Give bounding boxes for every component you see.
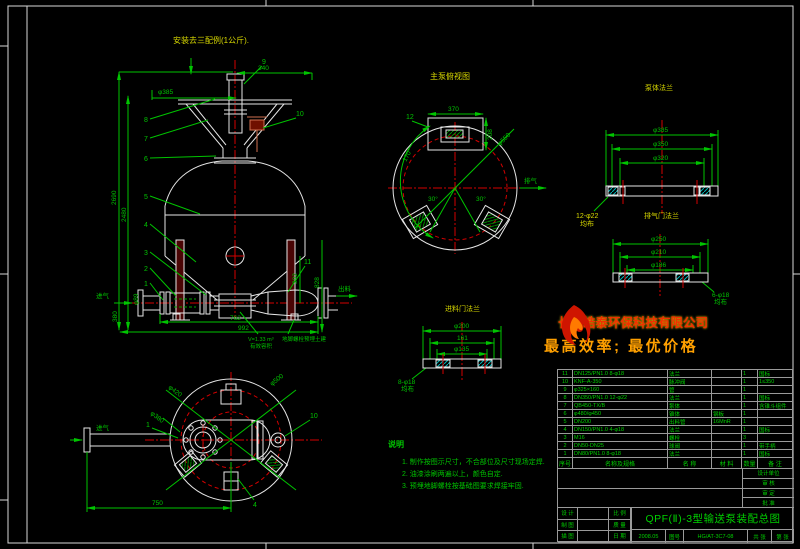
flange-c-holes: 8-φ18 (398, 379, 416, 386)
bom-cell-qty: 1 (742, 425, 758, 433)
leader-11: 11 (304, 259, 311, 266)
titleblock-info: 设计单位 审 核 审 定 批 准 (557, 468, 793, 507)
flange-detail-c: 进料门法兰 φ200 161 φ135 8-φ18 均布 (398, 304, 501, 393)
dim-828: 828 (314, 277, 321, 288)
bom-header-row: 序号 名称及规格 名 称 材 料 数量 备 注 (557, 457, 793, 468)
bom-cell-material (712, 441, 742, 449)
bom-cell-remark: 含锥斗组件 (758, 401, 793, 409)
bom-cell-name: 法兰 (668, 449, 712, 457)
bom-row: 9φ325×160管1 (558, 385, 793, 393)
bom-cell-qty: 1 (742, 441, 758, 449)
bom-row: 8DN350/PN1.0 12-φ22法兰1国标 (558, 393, 793, 401)
leader-4: 4 (144, 222, 148, 229)
bom-cell-remark (758, 433, 793, 441)
bom-header-no: 序号 (558, 457, 573, 468)
note-3: 3. 预埋地脚螺栓按基础图要求焊接牢固. (402, 481, 524, 490)
tb-design-label: 设 计 (558, 508, 578, 520)
bom-row: 4DN150/PN1.0 4-φ18法兰1国标 (558, 425, 793, 433)
bom-row: 2DN50-DN25球阀1带手柄 (558, 441, 793, 449)
bom-header-name: 名 称 (668, 457, 712, 468)
bom-cell-spec: M16 (573, 433, 668, 441)
bom-cell-material (712, 401, 742, 409)
bom-header-remark: 备 注 (758, 457, 793, 468)
dim-302: 302 (292, 273, 299, 284)
flange-a-d2: φ350 (653, 141, 668, 148)
leader-7: 7 (144, 136, 148, 143)
bom-cell-qty: 1 (742, 401, 758, 409)
dim-phi550: φ550 (496, 132, 512, 148)
bom-cell-name: 球阀 (668, 441, 712, 449)
bom-cell-no: 5 (558, 417, 573, 425)
flange-b-title: 排气门法兰 (644, 211, 679, 220)
bom-cell-spec: QB450-TX/B (573, 401, 668, 409)
note-1: 1. 制作按图示尺寸，不合部位及尺寸现场定焊. (402, 457, 545, 466)
tb-trace-label: 描 图 (558, 531, 578, 543)
leader-6: 6 (144, 156, 148, 163)
flame-icon (556, 303, 592, 347)
bom-cell-qty: 1 (742, 369, 758, 377)
flange-a-d3: φ320 (653, 155, 668, 162)
bom-cell-remark: 带手柄 (758, 441, 793, 449)
bom-cell-spec: DN50-DN25 (573, 441, 668, 449)
leader-12: 12 (406, 114, 414, 121)
bom-cell-no: 8 (558, 393, 573, 401)
dim-phi380: φ380 (149, 410, 165, 425)
bom-cell-spec: φ480/φ450 (573, 409, 668, 417)
bom-header-spec: 名称及规格 (573, 457, 668, 468)
bom-cell-qty: 1 (742, 417, 758, 425)
bom-cell-no: 4 (558, 425, 573, 433)
flange-a-dist: 均布 (580, 219, 594, 228)
drawing-no: HG/AT-3C7-08 (684, 530, 748, 543)
inlet-label: 进气 (96, 291, 110, 300)
bom-cell-spec: KNF-A-350 (573, 377, 668, 385)
bom-cell-no: 3 (558, 433, 573, 441)
bv-leader-4: 4 (253, 502, 257, 509)
bom-cell-material (712, 385, 742, 393)
tb-scale-label: 比 例 (609, 508, 631, 520)
bom-cell-name: 出料管 (668, 417, 712, 425)
flange-a-d1: φ385 (653, 127, 668, 134)
bom-cell-material (712, 369, 742, 377)
bom-cell-no: 2 (558, 441, 573, 449)
bom-cell-qty: 3 (742, 433, 758, 441)
bom-cell-material (712, 449, 742, 457)
bom-cell-remark (758, 409, 793, 417)
volume-callout: V=1.33 m³ (248, 337, 274, 343)
tb-trace-value (578, 531, 609, 543)
angle-30-left: 30° (428, 195, 438, 203)
bom-cell-name: 法兰 (668, 425, 712, 433)
bom-cell-remark: 国标 (758, 369, 793, 377)
bom-cell-remark: 国标 (758, 449, 793, 457)
note-2: 2. 油漆涂刷两遍以上，颜色自定. (402, 469, 503, 478)
leader-1: 1 (144, 281, 148, 288)
drawing-title: QPF(Ⅱ)-3型输送泵装配总图 (631, 508, 794, 530)
tb-draw-value (578, 520, 609, 532)
top-view-title: 主泵俯视图 (430, 71, 470, 81)
tb-draw-label: 制 图 (558, 520, 578, 532)
bom-cell-material (712, 377, 742, 385)
bom-cell-no: 7 (558, 401, 573, 409)
dim-phi500: φ500 (269, 373, 285, 388)
bom-header-material: 材 料 (712, 457, 742, 468)
anchor-note: 地脚螺栓预埋土建 (282, 335, 327, 343)
bom-cell-remark: 国标 (758, 393, 793, 401)
bv-leader-1: 1 (146, 422, 150, 429)
dim-340: 340 (258, 65, 269, 72)
flange-c-title: 进料门法兰 (445, 304, 480, 313)
tb-date-label: 日 期 (609, 531, 631, 543)
bom-cell-material: 钢板 (712, 409, 742, 417)
bom-cell-qty: 1 (742, 393, 758, 401)
drawing-date: 2008.05 (632, 530, 666, 543)
bom-cell-name: 泵体 (668, 401, 712, 409)
sheet-index: 第 张 (772, 530, 794, 543)
bom-cell-remark: 国标 (758, 425, 793, 433)
bom-row: 1DN80/PN1.0 8-φ18法兰1国标 (558, 449, 793, 457)
info-label-0: 设计单位 (743, 469, 794, 479)
bom-cell-material (712, 393, 742, 401)
bom-cell-no: 1 (558, 449, 573, 457)
dim-380: 380 (112, 311, 119, 322)
flange-b-d1: φ250 (651, 236, 666, 243)
top-view: 主泵俯视图 370 208 12 170° 30° 30° (388, 71, 546, 254)
dim-208: 208 (487, 129, 494, 140)
tb-mass-label: 质 量 (609, 520, 631, 532)
bom-cell-name: 法兰 (668, 369, 712, 377)
bom-cell-no: 11 (558, 369, 573, 377)
notes-section: 说明 1. 制作按图示尺寸，不合部位及尺寸现场定焊. 2. 油漆涂刷两遍以上，颜… (388, 439, 545, 490)
notes-title: 说明 (388, 439, 404, 449)
leader-10: 10 (296, 111, 304, 118)
flange-detail-a: 泵体法兰 φ385 φ350 φ320 12-φ22 均布 (576, 83, 718, 228)
bom-cell-remark (758, 385, 793, 393)
tb-design-value (578, 508, 609, 520)
bom-row: 5DN200出料管16MnR1 (558, 417, 793, 425)
bom-cell-qty: 1 (742, 385, 758, 393)
leader-3: 3 (144, 250, 148, 257)
bom-header-qty: 数量 (742, 457, 758, 468)
bom-cell-no: 10 (558, 377, 573, 385)
flange-c-d2: 161 (457, 335, 468, 342)
leader-5: 5 (144, 194, 148, 201)
dim-370: 370 (448, 106, 459, 113)
leader-2: 2 (144, 266, 148, 273)
bom-cell-qty: 1 (742, 449, 758, 457)
bom-cell-no: 9 (558, 385, 573, 393)
leader-9: 9 (262, 59, 266, 66)
company-logo: 长沙皓泰环保科技有限公司 最高效率; 最优价格 (556, 303, 794, 367)
dim-992: 992 (238, 325, 249, 332)
bom-cell-spec: DN125/PN1.0 8-φ18 (573, 369, 668, 377)
flange-b-holes: 6-φ18 (712, 292, 730, 299)
bom-row: 3M16螺栓3 (558, 433, 793, 441)
bom-cell-no: 6 (558, 409, 573, 417)
dim-phi385: φ385 (158, 89, 173, 96)
bom-row: 6φ480/φ450锥体钢板1 (558, 409, 793, 417)
exhaust-label: 排气 (524, 176, 538, 185)
dim-phi89: φ89 (133, 293, 140, 305)
install-note: 安装去三配例(1公斤). (173, 35, 249, 45)
dim-762: 762 (230, 315, 241, 322)
drawing-no-label: 图号 (666, 530, 684, 543)
bom-cell-material (712, 433, 742, 441)
dim-2690: 2690 (111, 190, 118, 205)
sheets-total: 共 张 (748, 530, 772, 543)
bom-cell-name: 管 (668, 385, 712, 393)
flange-a-title: 泵体法兰 (645, 83, 673, 92)
bom-table: 11DN125/PN1.0 8-φ18法兰1国标10KNF-A-350脉冲阀11… (557, 369, 793, 457)
bom-cell-qty: 1 (742, 409, 758, 417)
angle-30-right: 30° (476, 195, 486, 203)
bom-cell-name: 锥体 (668, 409, 712, 417)
volume-callout-2: 有效容积 (250, 342, 273, 350)
flange-c-dist: 均布 (401, 384, 415, 393)
bom-cell-material (712, 425, 742, 433)
cad-drawing-sheet: 安装去三配例(1公斤). (0, 0, 800, 549)
flange-b-d2: φ210 (651, 249, 666, 256)
bottom-inlet-label: 进气 (96, 423, 110, 432)
bom-cell-spec: DN350/PN1.0 12-φ22 (573, 393, 668, 401)
bom-cell-spec: φ325×160 (573, 385, 668, 393)
bom-row: 11DN125/PN1.0 8-φ18法兰1国标 (558, 369, 793, 377)
flange-c-d3: φ135 (454, 346, 469, 353)
bom-cell-name: 法兰 (668, 393, 712, 401)
bom-cell-material: 16MnR (712, 417, 742, 425)
bom-cell-name: 螺栓 (668, 433, 712, 441)
flange-a-holes: 12-φ22 (576, 213, 599, 220)
bottom-view: φ420 φ500 φ380 750 进气 1 10 4 (70, 372, 322, 512)
bom-cell-remark (758, 417, 793, 425)
titleblock-blank-area (558, 469, 743, 508)
dim-2480: 2480 (121, 207, 128, 222)
titleblock-bottom: 设 计 比 例 制 图 质 量 描 图 日 期 QPF(Ⅱ)-3型输送泵装配总图… (557, 507, 793, 542)
bom-row: 10KNF-A-350脉冲阀11≤350 (558, 377, 793, 385)
bom-cell-spec: DN80/PN1.0 8-φ18 (573, 449, 668, 457)
bom-cell-spec: DN200 (573, 417, 668, 425)
info-label-1: 审 核 (743, 479, 794, 489)
outlet-label: 出料 (338, 284, 352, 293)
flange-c-d1: φ200 (454, 323, 469, 330)
leader-8: 8 (144, 117, 148, 124)
bom-cell-name: 脉冲阀 (668, 377, 712, 385)
main-elevation-view: 340 φ385 2690 2480 762 992 φ89 380 302 8… (96, 58, 357, 350)
dim-750: 750 (152, 500, 163, 507)
flange-b-d3: φ186 (651, 262, 666, 269)
bom-cell-spec: DN150/PN1.0 4-φ18 (573, 425, 668, 433)
info-label-2: 审 定 (743, 489, 794, 499)
bom-cell-qty: 1 (742, 377, 758, 385)
bom-cell-remark: 1≤350 (758, 377, 793, 385)
bom-row: 7QB450-TX/B泵体1含锥斗组件 (558, 401, 793, 409)
flange-detail-b: 排气门法兰 φ250 φ210 φ186 6-φ18 均布 (613, 211, 730, 306)
bv-leader-10: 10 (310, 413, 318, 420)
